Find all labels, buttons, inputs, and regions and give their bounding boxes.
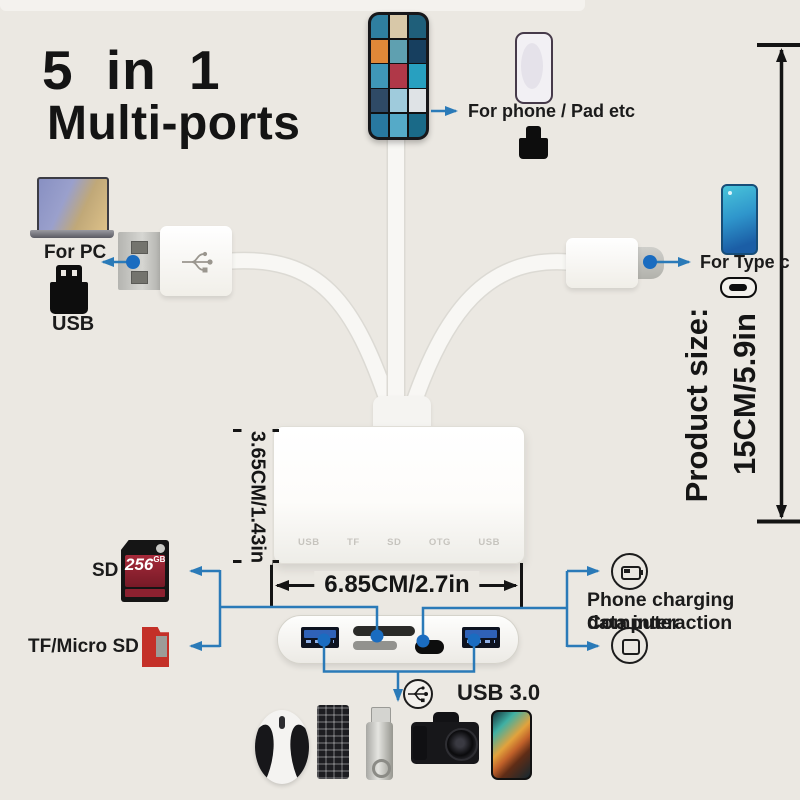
gallery-photo [409,15,426,38]
mouse-image [255,710,309,784]
adapter-underside [277,615,519,664]
gallery-photo [409,114,426,137]
usb-c-connector [566,238,666,288]
tf-port-icon: TF [347,537,360,548]
gallery-photo [371,40,388,63]
page-subtitle: Multi-ports [47,96,300,151]
usb-c-port [415,640,444,654]
usb3-trident-icon [403,679,433,709]
phone-icon [515,32,553,104]
gallery-photo [371,64,388,87]
usb-trident-icon [178,249,218,275]
lightning-adapter-icon [519,126,548,160]
gallery-photo [371,114,388,137]
laptop-icon [30,177,114,239]
otg-port-icon: OTG [429,537,451,548]
keyboard-image [317,705,349,779]
adapter-body: USB TF SD OTG USB [273,426,525,564]
for-pc-label: For PC [44,242,106,264]
type-c-phone-icon [721,184,758,255]
phone-image [491,710,532,780]
usb-a-port-right [462,627,500,648]
usb-port-icon: USB [298,537,320,548]
gallery-photo [409,64,426,87]
width-dimension-label: 6.85CM/2.7in [314,571,479,599]
gallery-photo [409,40,426,63]
gallery-photo [390,114,407,137]
charging-text-line2: data interaction [587,612,732,635]
for-phone-label: For phone / Pad etc [468,101,635,122]
usb-a-connector [118,226,233,302]
sd-card-unit: GB [153,555,165,564]
gallery-photo [409,89,426,112]
product-size-label: Product size: [679,308,715,503]
gallery-photo [371,89,388,112]
sd-card-slot [353,626,415,636]
usb30-label: USB 3.0 [457,680,540,706]
tf-micro-sd-label: TF/Micro SD [28,636,139,658]
product-size-value: 15CM/5.9in [727,313,763,475]
flashdrive-image [362,707,398,783]
usb-label: USB [52,313,94,336]
phone-gallery [368,12,429,140]
adapter-front-port-icons: USB TF SD OTG USB [274,537,524,548]
usb-plug-icon [50,265,88,314]
camera-image [411,710,479,774]
tf-card-image [142,627,169,667]
gallery-photo [390,15,407,38]
battery-charging-icon [611,553,648,590]
usb-c-pill-icon [720,277,757,298]
product-infographic: 5 in 1 Multi-ports For PC USB For phone … [0,0,800,800]
gallery-photo [390,64,407,87]
height-dimension-label: 3.65CM/1.43in [242,429,273,565]
for-type-c-label: For Type c [700,252,790,273]
tf-card-slot [353,641,397,650]
gallery-photo [371,15,388,38]
phone-gallery-grid [371,15,426,137]
gallery-photo [390,40,407,63]
page-title: 5 in 1 [42,38,221,102]
sd-port-icon: SD [387,537,401,548]
usb3-port-icon: USB [478,537,500,548]
gallery-photo [390,89,407,112]
usb-a-port-left [301,627,339,648]
sd-label: SD [92,560,118,582]
sd-card-capacity: 256 [125,555,153,574]
sd-card-image: 256GB [121,540,169,602]
